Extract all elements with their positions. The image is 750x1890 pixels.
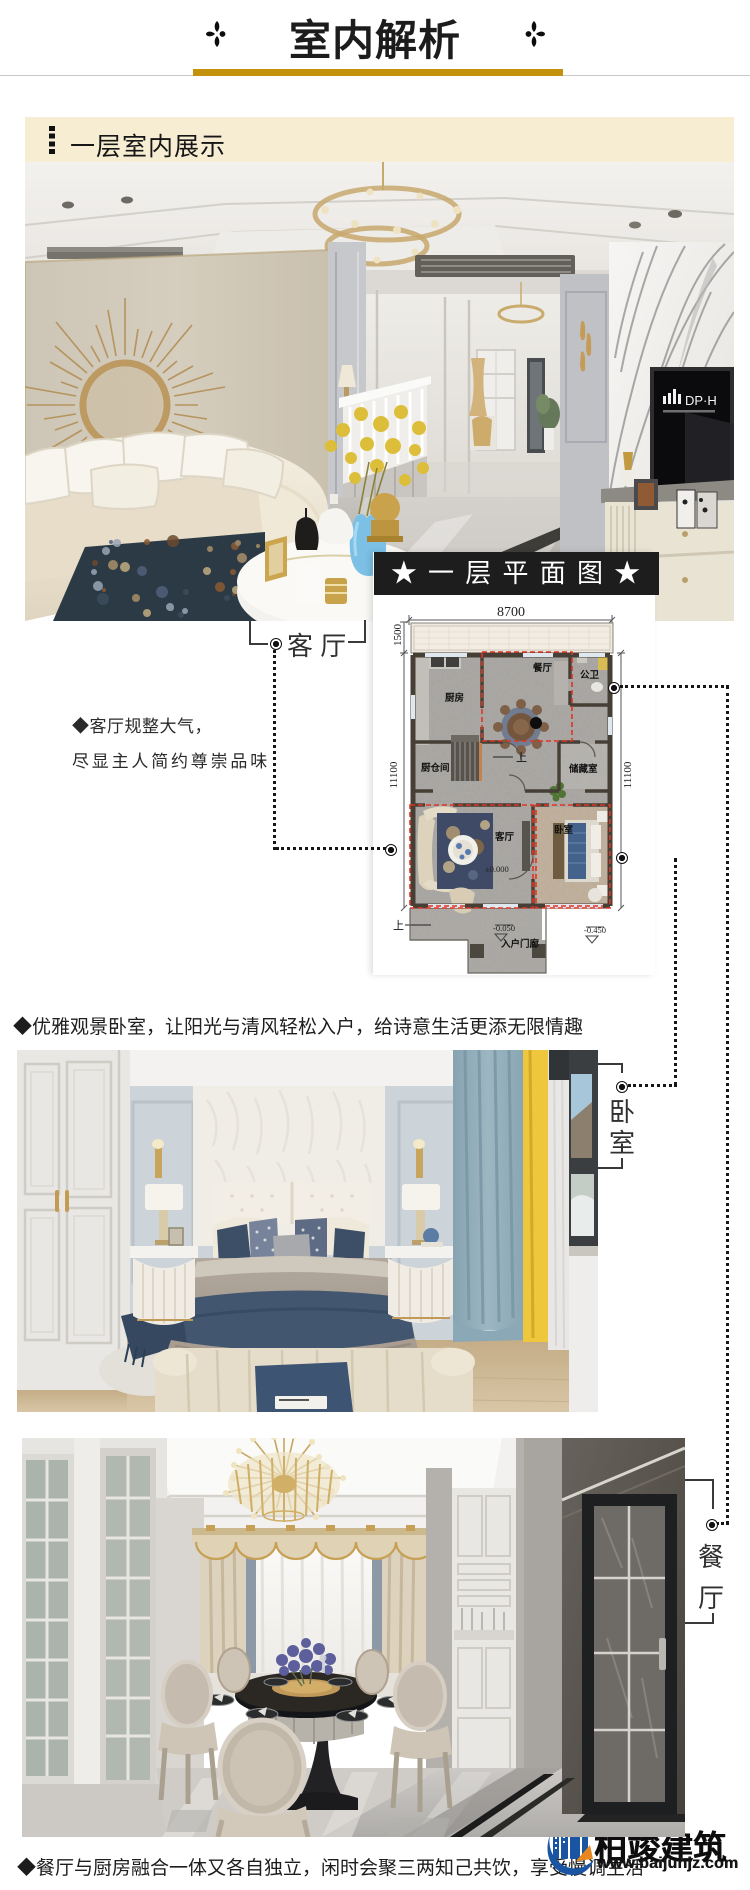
svg-text:DP·H: DP·H	[685, 393, 717, 408]
svg-text:±0.000: ±0.000	[485, 864, 509, 874]
svg-text:客厅: 客厅	[494, 831, 515, 843]
svg-text:餐厅: 餐厅	[532, 662, 553, 674]
svg-text:入户门廊: 入户门廊	[500, 938, 540, 950]
svg-text:厨房: 厨房	[445, 692, 464, 704]
svg-text:公卫: 公卫	[580, 670, 600, 681]
svg-text:储藏室: 储藏室	[569, 763, 598, 775]
svg-text:上: 上	[516, 751, 527, 764]
svg-text:卧室: 卧室	[554, 824, 574, 836]
svg-text:1500: 1500	[392, 624, 404, 647]
svg-text:上: 上	[393, 919, 404, 932]
svg-text:8700: 8700	[497, 605, 525, 620]
svg-text:厨仓间: 厨仓间	[421, 762, 450, 774]
svg-text:11100: 11100	[388, 761, 400, 788]
svg-text:11100: 11100	[622, 761, 634, 788]
